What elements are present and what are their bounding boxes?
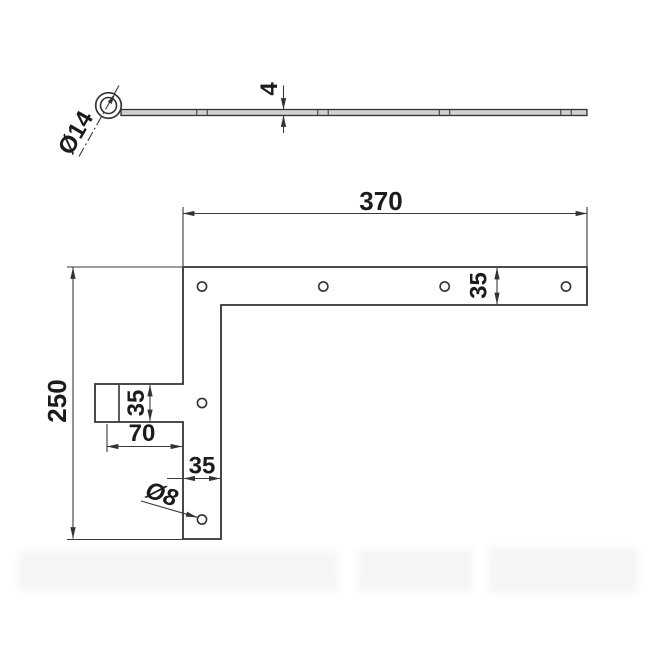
screw-hole (319, 282, 328, 291)
eye-outer-circle (96, 93, 122, 119)
faint-watermark (18, 547, 638, 593)
thickness-label: 4 (256, 82, 283, 96)
screw-hole (197, 398, 206, 407)
leg-width-label: 35 (189, 453, 216, 480)
tab-height-label: 35 (123, 390, 150, 417)
eye-offset-label: 70 (129, 420, 156, 447)
strap-edge-profile (121, 110, 587, 116)
screw-hole (197, 515, 206, 524)
screw-hole (197, 282, 206, 291)
height-label: 250 (42, 379, 72, 422)
hole-diameter-label: Ø8 (142, 477, 182, 513)
drawing-canvas: Ø14 4 (0, 0, 650, 650)
length-label: 370 (359, 186, 402, 216)
front-view: 370 250 35 35 70 (42, 186, 587, 540)
side-view: Ø14 4 (53, 82, 587, 160)
screw-holes (197, 282, 570, 524)
screw-hole (440, 282, 449, 291)
hinge-technical-drawing: Ø14 4 (0, 0, 650, 650)
screw-hole (561, 282, 570, 291)
bar-width-label: 35 (466, 272, 493, 299)
